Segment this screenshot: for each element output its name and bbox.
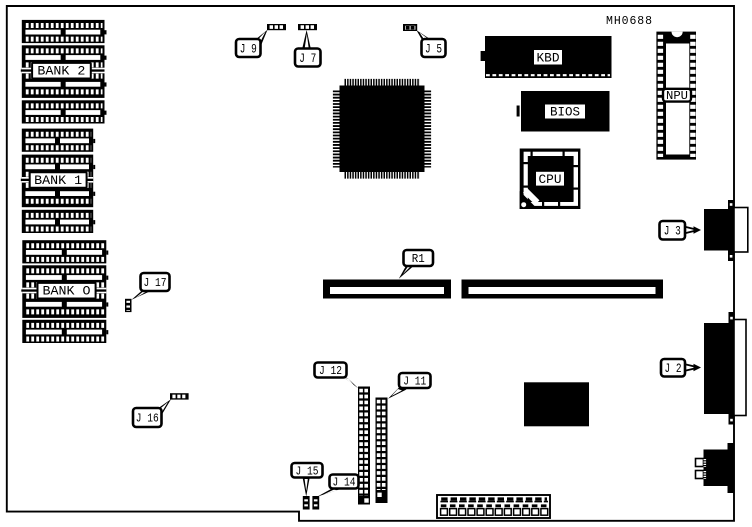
svg-text:J 16: J 16 — [136, 412, 159, 426]
svg-text:J 15: J 15 — [296, 464, 319, 478]
svg-text:NPU: NPU — [666, 89, 688, 103]
svg-text:J 14: J 14 — [333, 476, 356, 490]
svg-text:BANK 1: BANK 1 — [34, 173, 82, 188]
svg-text:J 17: J 17 — [144, 276, 167, 290]
svg-text:R1: R1 — [412, 252, 425, 266]
svg-text:J 5: J 5 — [425, 42, 442, 56]
svg-text:CPU: CPU — [539, 173, 562, 187]
svg-text:J 3: J 3 — [664, 225, 681, 239]
svg-text:BIOS: BIOS — [550, 106, 580, 120]
svg-text:KBD: KBD — [537, 52, 560, 66]
svg-text:BANK 2: BANK 2 — [37, 64, 85, 79]
svg-text:J 9: J 9 — [240, 42, 257, 56]
svg-text:J 7: J 7 — [299, 52, 316, 66]
svg-text:J 12: J 12 — [319, 364, 342, 378]
svg-text:J 11: J 11 — [403, 375, 426, 389]
svg-text:MH0688: MH0688 — [606, 15, 652, 28]
svg-text:BANK O: BANK O — [43, 284, 91, 299]
svg-text:J 2: J 2 — [665, 362, 682, 376]
